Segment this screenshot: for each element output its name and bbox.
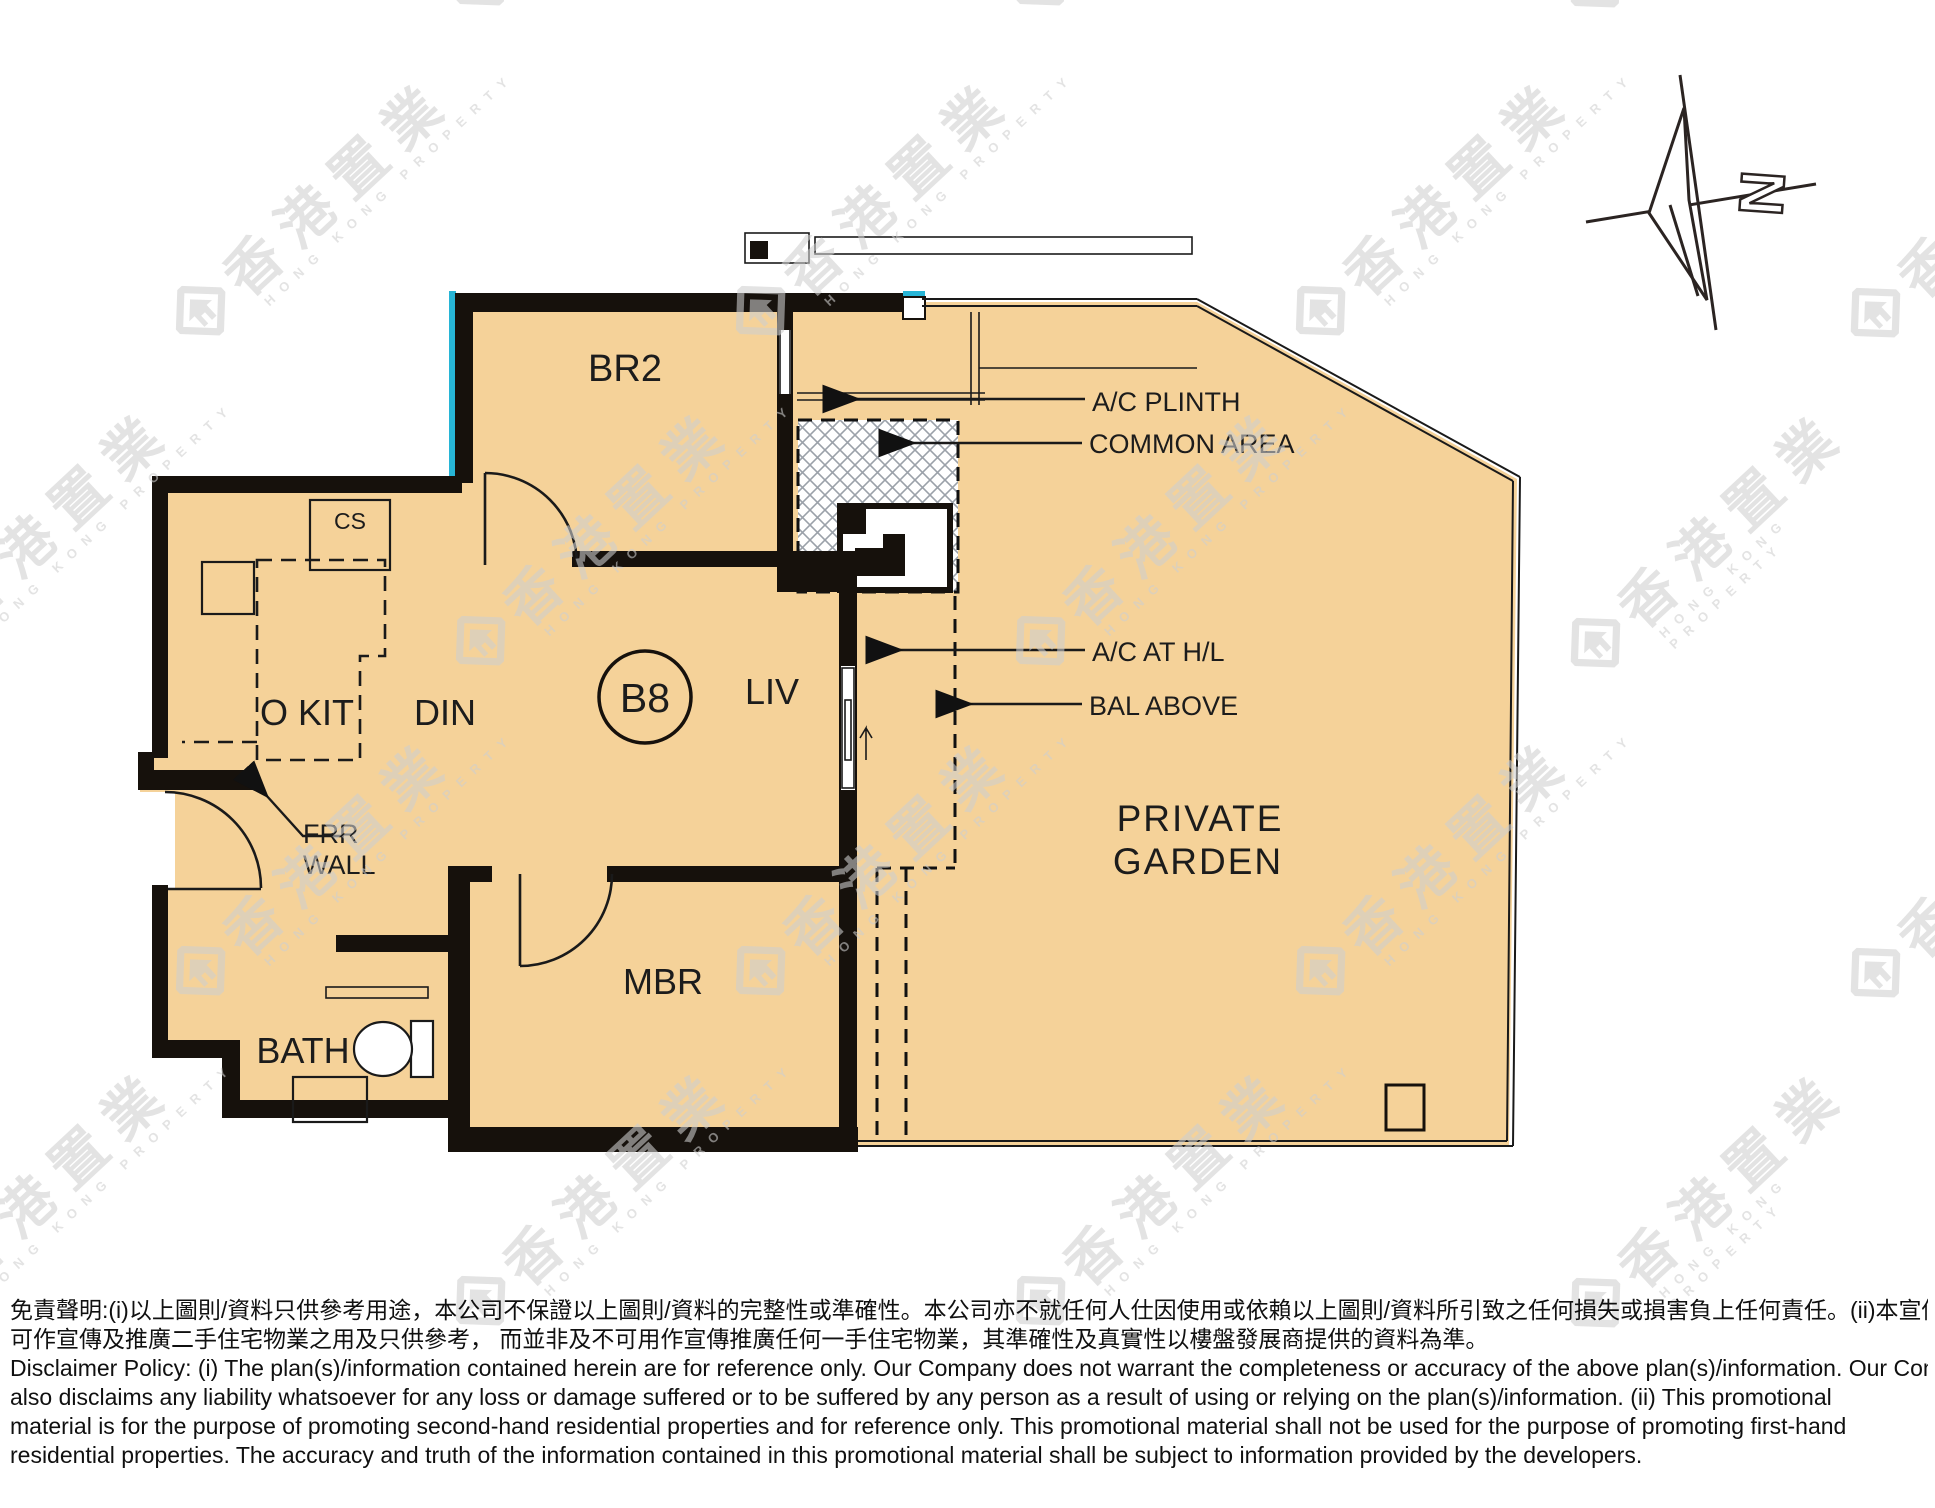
ac-platform-block (750, 241, 768, 259)
wall-segment (470, 866, 492, 882)
toilet-tank (411, 1021, 433, 1077)
wall-segment (572, 551, 793, 567)
garden-label-line1: PRIVATE (1117, 798, 1284, 839)
wall-segment (448, 1127, 858, 1152)
compass-north-letter: N (1725, 169, 1797, 218)
room-label-bath: BATH (256, 1030, 349, 1071)
ac-platform-strip (815, 237, 1192, 254)
wall-box (903, 297, 925, 319)
structure-step (840, 506, 866, 534)
disclaimer-line: 可作宣傳及推廣二手住宅物業之用及只供參考， 而並非及不可用作宣傳推廣任何一手住宅… (10, 1325, 1928, 1354)
room-label-mbr: MBR (623, 961, 703, 1002)
unit-badge-label: B8 (620, 675, 670, 721)
disclaimer-line: Disclaimer Policy: (i) The plan(s)/infor… (10, 1354, 1928, 1383)
disclaimer-line: also disclaims any liability whatsoever … (10, 1383, 1928, 1412)
ann-frr-line1: FRR (303, 819, 359, 849)
north-compass: N (1586, 75, 1816, 330)
disclaimer-line: material is for the purpose of promoting… (10, 1412, 1928, 1441)
cyan-wall-accent (449, 291, 456, 485)
floor-plan-svg: BR2 CS O KIT DIN LIV MBR BATH PRIVATE GA… (0, 0, 1935, 1508)
wall-segment (222, 1100, 458, 1118)
ann-common-area: COMMON AREA (1089, 429, 1295, 459)
wall-segment (152, 885, 168, 1058)
room-label-okit: O KIT (260, 692, 354, 733)
garden-label-line2: GARDEN (1113, 841, 1283, 882)
toilet-bowl (354, 1022, 412, 1076)
wall-segment (152, 476, 462, 493)
ann-bal-above: BAL ABOVE (1089, 691, 1238, 721)
wall-segment (152, 1040, 230, 1058)
wall-segment (138, 752, 154, 790)
ann-frr-line2: WALL (303, 850, 376, 880)
wall-segment (448, 866, 470, 1152)
ann-ac-plinth: A/C PLINTH (1092, 387, 1241, 417)
wall-segment (336, 935, 454, 952)
wall-segment (607, 866, 857, 882)
ann-ac-at-hl: A/C AT H/L (1092, 637, 1225, 667)
wall-segment (455, 293, 905, 312)
label-cs: CS (334, 508, 366, 534)
wall-segment (455, 293, 473, 483)
room-label-liv: LIV (745, 671, 799, 712)
disclaimer-line: 免責聲明:(i)以上圖則/資料只供參考用途，本公司不保證以上圖則/資料的完整性或… (10, 1296, 1928, 1325)
room-label-br2: BR2 (588, 348, 662, 390)
disclaimer-line: residential properties. The accuracy and… (10, 1441, 1928, 1470)
wall-segment (777, 551, 857, 592)
frr-wall-segment (152, 770, 258, 790)
window-gap (841, 666, 855, 790)
wall-segment (152, 476, 168, 758)
room-label-din: DIN (414, 692, 476, 733)
floor-plan-page: BR2 CS O KIT DIN LIV MBR BATH PRIVATE GA… (0, 0, 1935, 1508)
wall-segment (839, 560, 857, 1152)
disclaimer-block: 免責聲明:(i)以上圖則/資料只供參考用途，本公司不保證以上圖則/資料的完整性或… (10, 1296, 1928, 1470)
